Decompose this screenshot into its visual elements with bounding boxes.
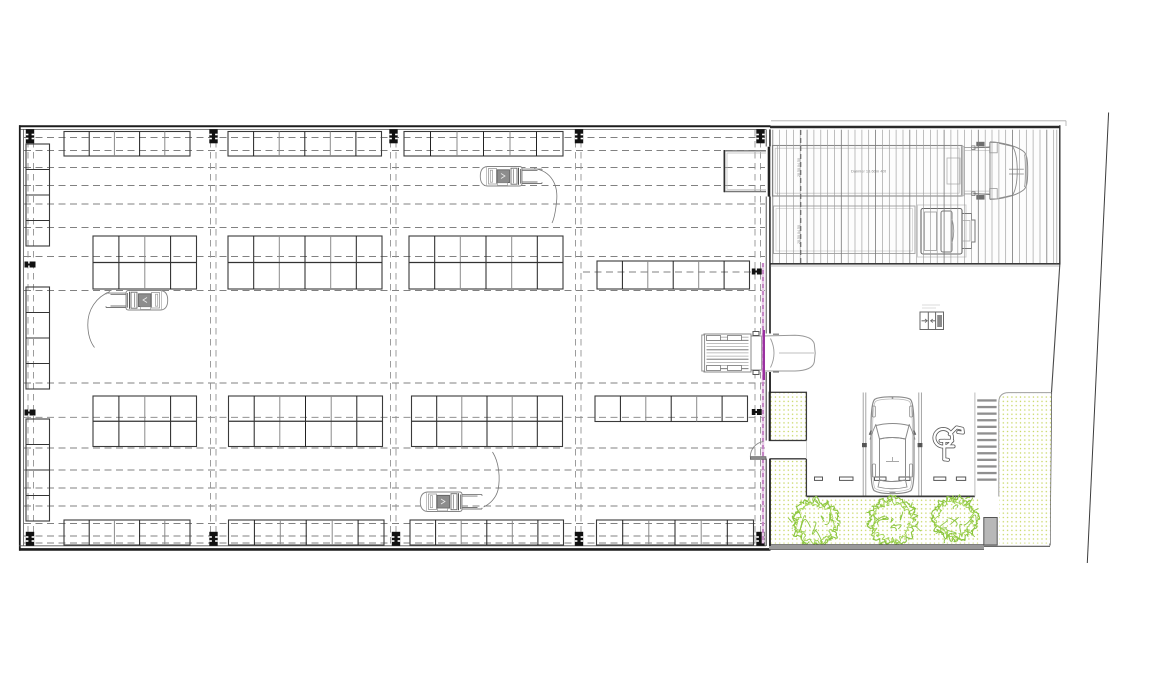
- svg-text:28.50 04.50: 28.50 04.50: [797, 158, 801, 177]
- svg-text:28.50 04.50: 28.50 04.50: [797, 225, 801, 244]
